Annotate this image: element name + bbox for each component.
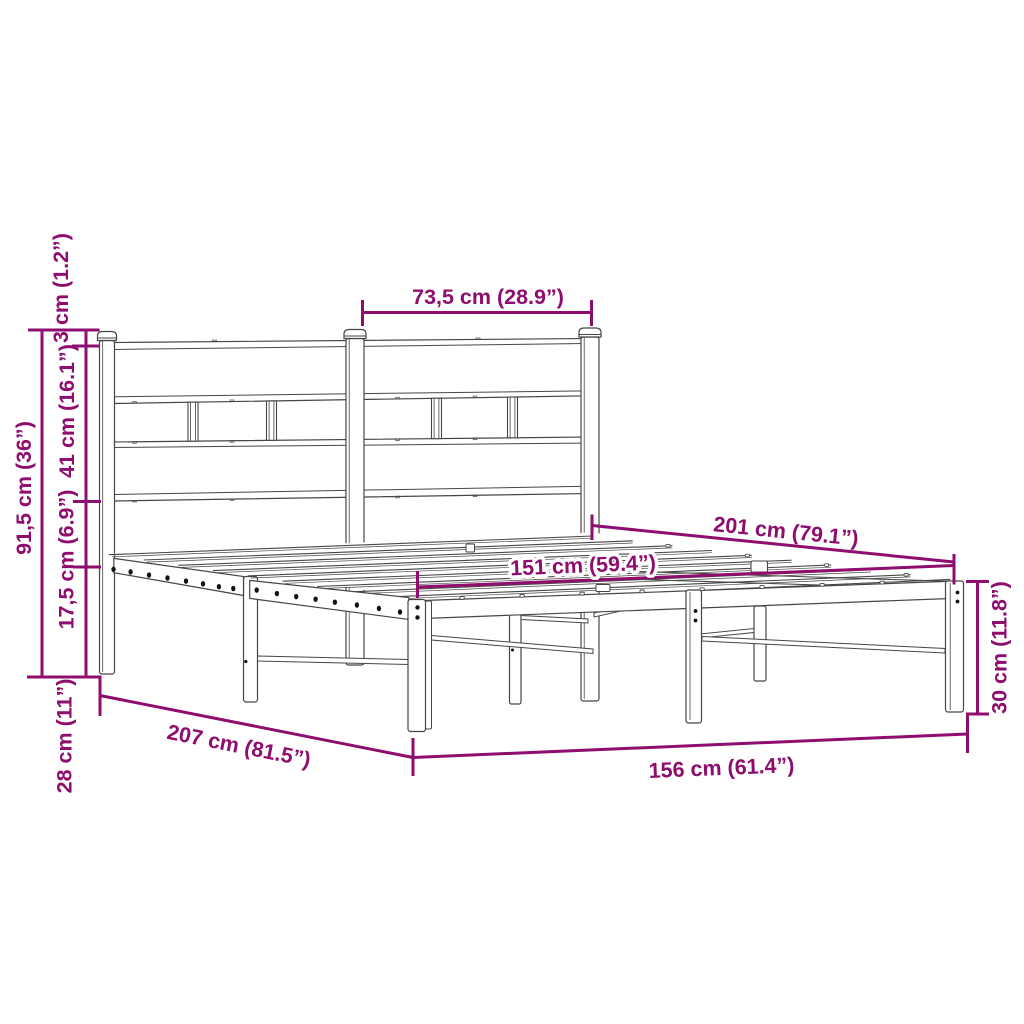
svg-text:3 cm (1.2”): 3 cm (1.2”) <box>49 233 73 343</box>
svg-text:30 cm (11.8”): 30 cm (11.8”) <box>988 581 1012 714</box>
svg-text:28 cm (11”): 28 cm (11”) <box>53 679 77 794</box>
svg-text:73,5 cm (28.9”): 73,5 cm (28.9”) <box>412 285 564 309</box>
svg-text:41 cm (16.1”): 41 cm (16.1”) <box>55 344 79 478</box>
svg-text:91,5 cm (36”): 91,5 cm (36”) <box>12 421 36 555</box>
svg-text:17,5 cm (6.9”): 17,5 cm (6.9”) <box>55 490 79 630</box>
